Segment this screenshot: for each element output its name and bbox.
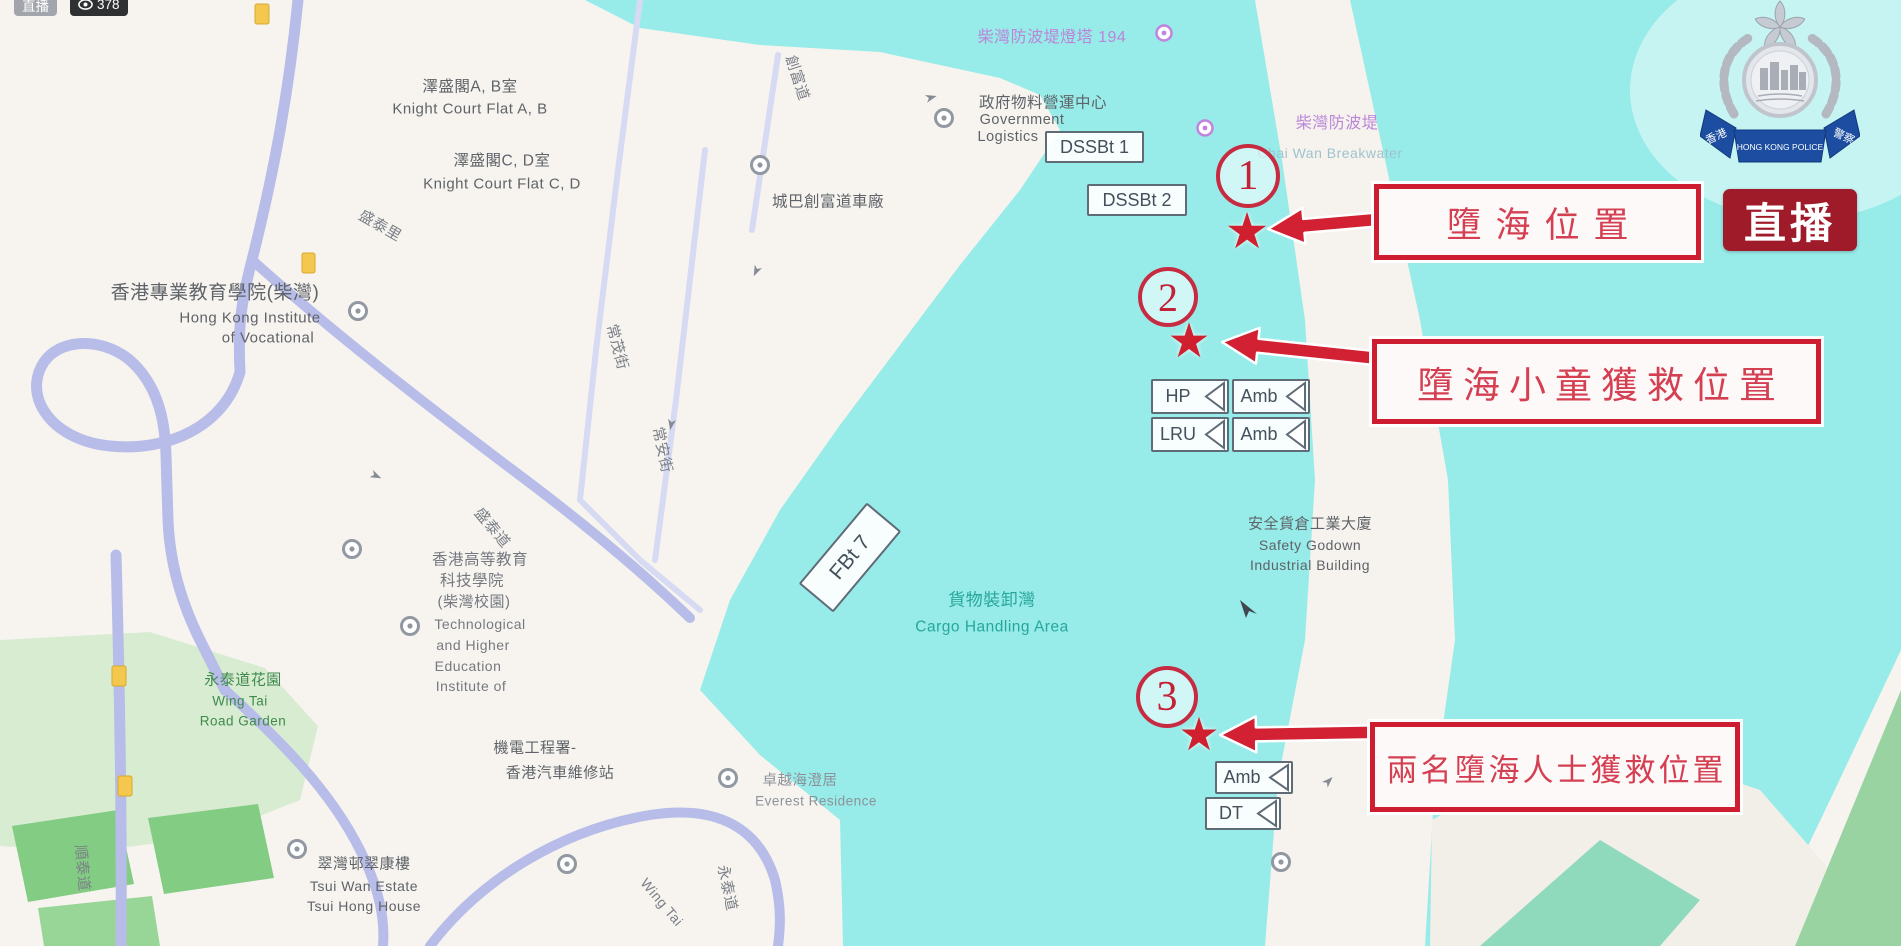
- ribbon-banner-text: HONG KONG POLICE: [1737, 142, 1824, 152]
- unit-box-amb-top: Amb: [1232, 379, 1310, 414]
- marker-number: 1: [1238, 152, 1259, 200]
- poi-label-garden-zh: 永泰道花園: [204, 673, 282, 688]
- poi-label-tsuiwan-zh: 翠灣邨翠康樓: [317, 857, 410, 872]
- unit-box-dssbt2: DSSBt 2: [1087, 184, 1187, 216]
- minor-streets: [580, 0, 778, 610]
- callout-child-rescue-location: 墮海小童獲救位置: [1372, 339, 1821, 424]
- poi-label-tsuiwan-en2: Tsui Hong House: [307, 899, 421, 913]
- unit-box-dssbt1: DSSBt 1: [1045, 131, 1144, 163]
- unit-box-dt: DT: [1205, 797, 1281, 830]
- water-label-cargo-zh: 貨物裝卸灣: [948, 592, 1036, 609]
- pennant-icon: [1203, 381, 1227, 412]
- star-icon-1: ★: [1225, 206, 1270, 256]
- unit-box-amb-bottom: Amb: [1232, 417, 1310, 452]
- viewer-count: 378: [97, 0, 120, 12]
- poi-label-thei-zh3: (柴灣校園): [438, 595, 511, 610]
- pennant-icon: [1203, 419, 1227, 450]
- poi-label-lighthouse: 柴灣防波堤燈塔 194: [978, 30, 1127, 46]
- pennant-icon: [1255, 799, 1279, 828]
- poi-label-godown-zh: 安全貨倉工業大廈: [1248, 517, 1372, 532]
- poi-label-citybus: 城巴創富道車廠: [772, 194, 884, 210]
- poi-label-emsd-zh1: 機電工程署-: [494, 741, 577, 756]
- poi-label-thei-en4: Institute of: [436, 679, 507, 693]
- poi-label-hkive-zh: 香港專業教育學院(柴灣): [111, 284, 320, 303]
- viewer-count-chip: 378: [70, 0, 128, 16]
- sports-field: [38, 896, 160, 946]
- unit-box-label: DT: [1207, 799, 1255, 828]
- poi-label-garden-en2: Road Garden: [200, 714, 287, 728]
- star-icon-2: ★: [1167, 318, 1210, 366]
- poi-label-knight-ab-zh: 澤盛閣A, B室: [422, 79, 517, 95]
- unit-box-label: Amb: [1234, 419, 1284, 450]
- poi-label-thei-en2: and Higher: [436, 638, 510, 652]
- poi-label-thei-zh1: 香港高等教育: [432, 552, 528, 568]
- live-overlay-badge: 直播: [1723, 189, 1857, 251]
- poi-label-thei-zh2: 科技學院: [440, 573, 504, 589]
- water-label-cargo-en: Cargo Handling Area: [915, 619, 1068, 635]
- pennant-icon: [1267, 763, 1291, 792]
- poi-label-hkive-en2: of Vocational: [222, 331, 314, 346]
- unit-box-lru: LRU: [1151, 417, 1229, 452]
- poi-label-everest-zh: 卓越海澄居: [763, 774, 838, 789]
- callout-two-persons-rescue-location: 兩名墮海人士獲救位置: [1370, 722, 1740, 812]
- poi-label-hkive-en1: Hong Kong Institute: [179, 311, 320, 326]
- poi-label-thei-en1: Technological: [434, 617, 525, 631]
- unit-box-label: Amb: [1217, 763, 1267, 792]
- eye-icon: [78, 0, 93, 10]
- live-overlay-label: 直播: [1744, 190, 1836, 251]
- live-chip-label: 直播: [22, 0, 49, 15]
- poi-label-knight-ab-en: Knight Court Flat A, B: [392, 102, 547, 117]
- unit-box-label: DSSBt 2: [1089, 186, 1185, 214]
- live-broadcast-map-frame: 澤盛閣A, B室 Knight Court Flat A, B 澤盛閣C, D室…: [0, 0, 1901, 946]
- poi-label-garden-en1: Wing Tai: [212, 694, 268, 708]
- star-icon-3: ★: [1178, 711, 1219, 757]
- unit-box-label: Amb: [1234, 381, 1284, 412]
- poi-label-godown-en2: Industrial Building: [1250, 558, 1370, 572]
- sports-field: [148, 804, 274, 894]
- live-chip: 直播: [14, 0, 57, 16]
- poi-label-knight-cd-zh: 澤盛閣C, D室: [453, 153, 550, 169]
- poi-label-gov-en1: Government: [980, 113, 1065, 128]
- unit-box-label: HP: [1153, 381, 1203, 412]
- poi-label-godown-en1: Safety Godown: [1259, 538, 1361, 552]
- callout-fall-location: 墮海位置: [1374, 184, 1701, 260]
- poi-label-knight-cd-en: Knight Court Flat C, D: [423, 177, 581, 192]
- street-label-shun-tai: 順泰道: [73, 844, 92, 892]
- unit-box-label: DSSBt 1: [1047, 133, 1142, 161]
- marker-number: 3: [1157, 673, 1178, 721]
- poi-label-thei-en3: Education: [435, 659, 502, 673]
- poi-label-breakwater-zh: 柴灣防波堤: [1296, 116, 1379, 132]
- poi-label-tsuiwan-en1: Tsui Wan Estate: [310, 879, 418, 893]
- marker-number: 2: [1158, 274, 1178, 321]
- pennant-icon: [1284, 381, 1308, 412]
- unit-box-amb3: Amb: [1215, 761, 1293, 794]
- marker-circle-1: 1: [1216, 144, 1280, 208]
- hk-police-emblem: 香港 HONG KONG POLICE 警察: [1700, 0, 1860, 172]
- pennant-icon: [1284, 419, 1308, 450]
- unit-box-label: LRU: [1153, 419, 1203, 450]
- poi-label-gov-en2: Logistics: [978, 130, 1039, 145]
- poi-label-breakwater-en: Chai Wan Breakwater: [1257, 146, 1402, 160]
- poi-label-everest-en: Everest Residence: [755, 794, 877, 808]
- poi-label-emsd-zh2: 香港汽車維修站: [506, 766, 615, 781]
- unit-box-hp: HP: [1151, 379, 1229, 414]
- poi-label-gov-zh: 政府物料營運中心: [979, 95, 1107, 111]
